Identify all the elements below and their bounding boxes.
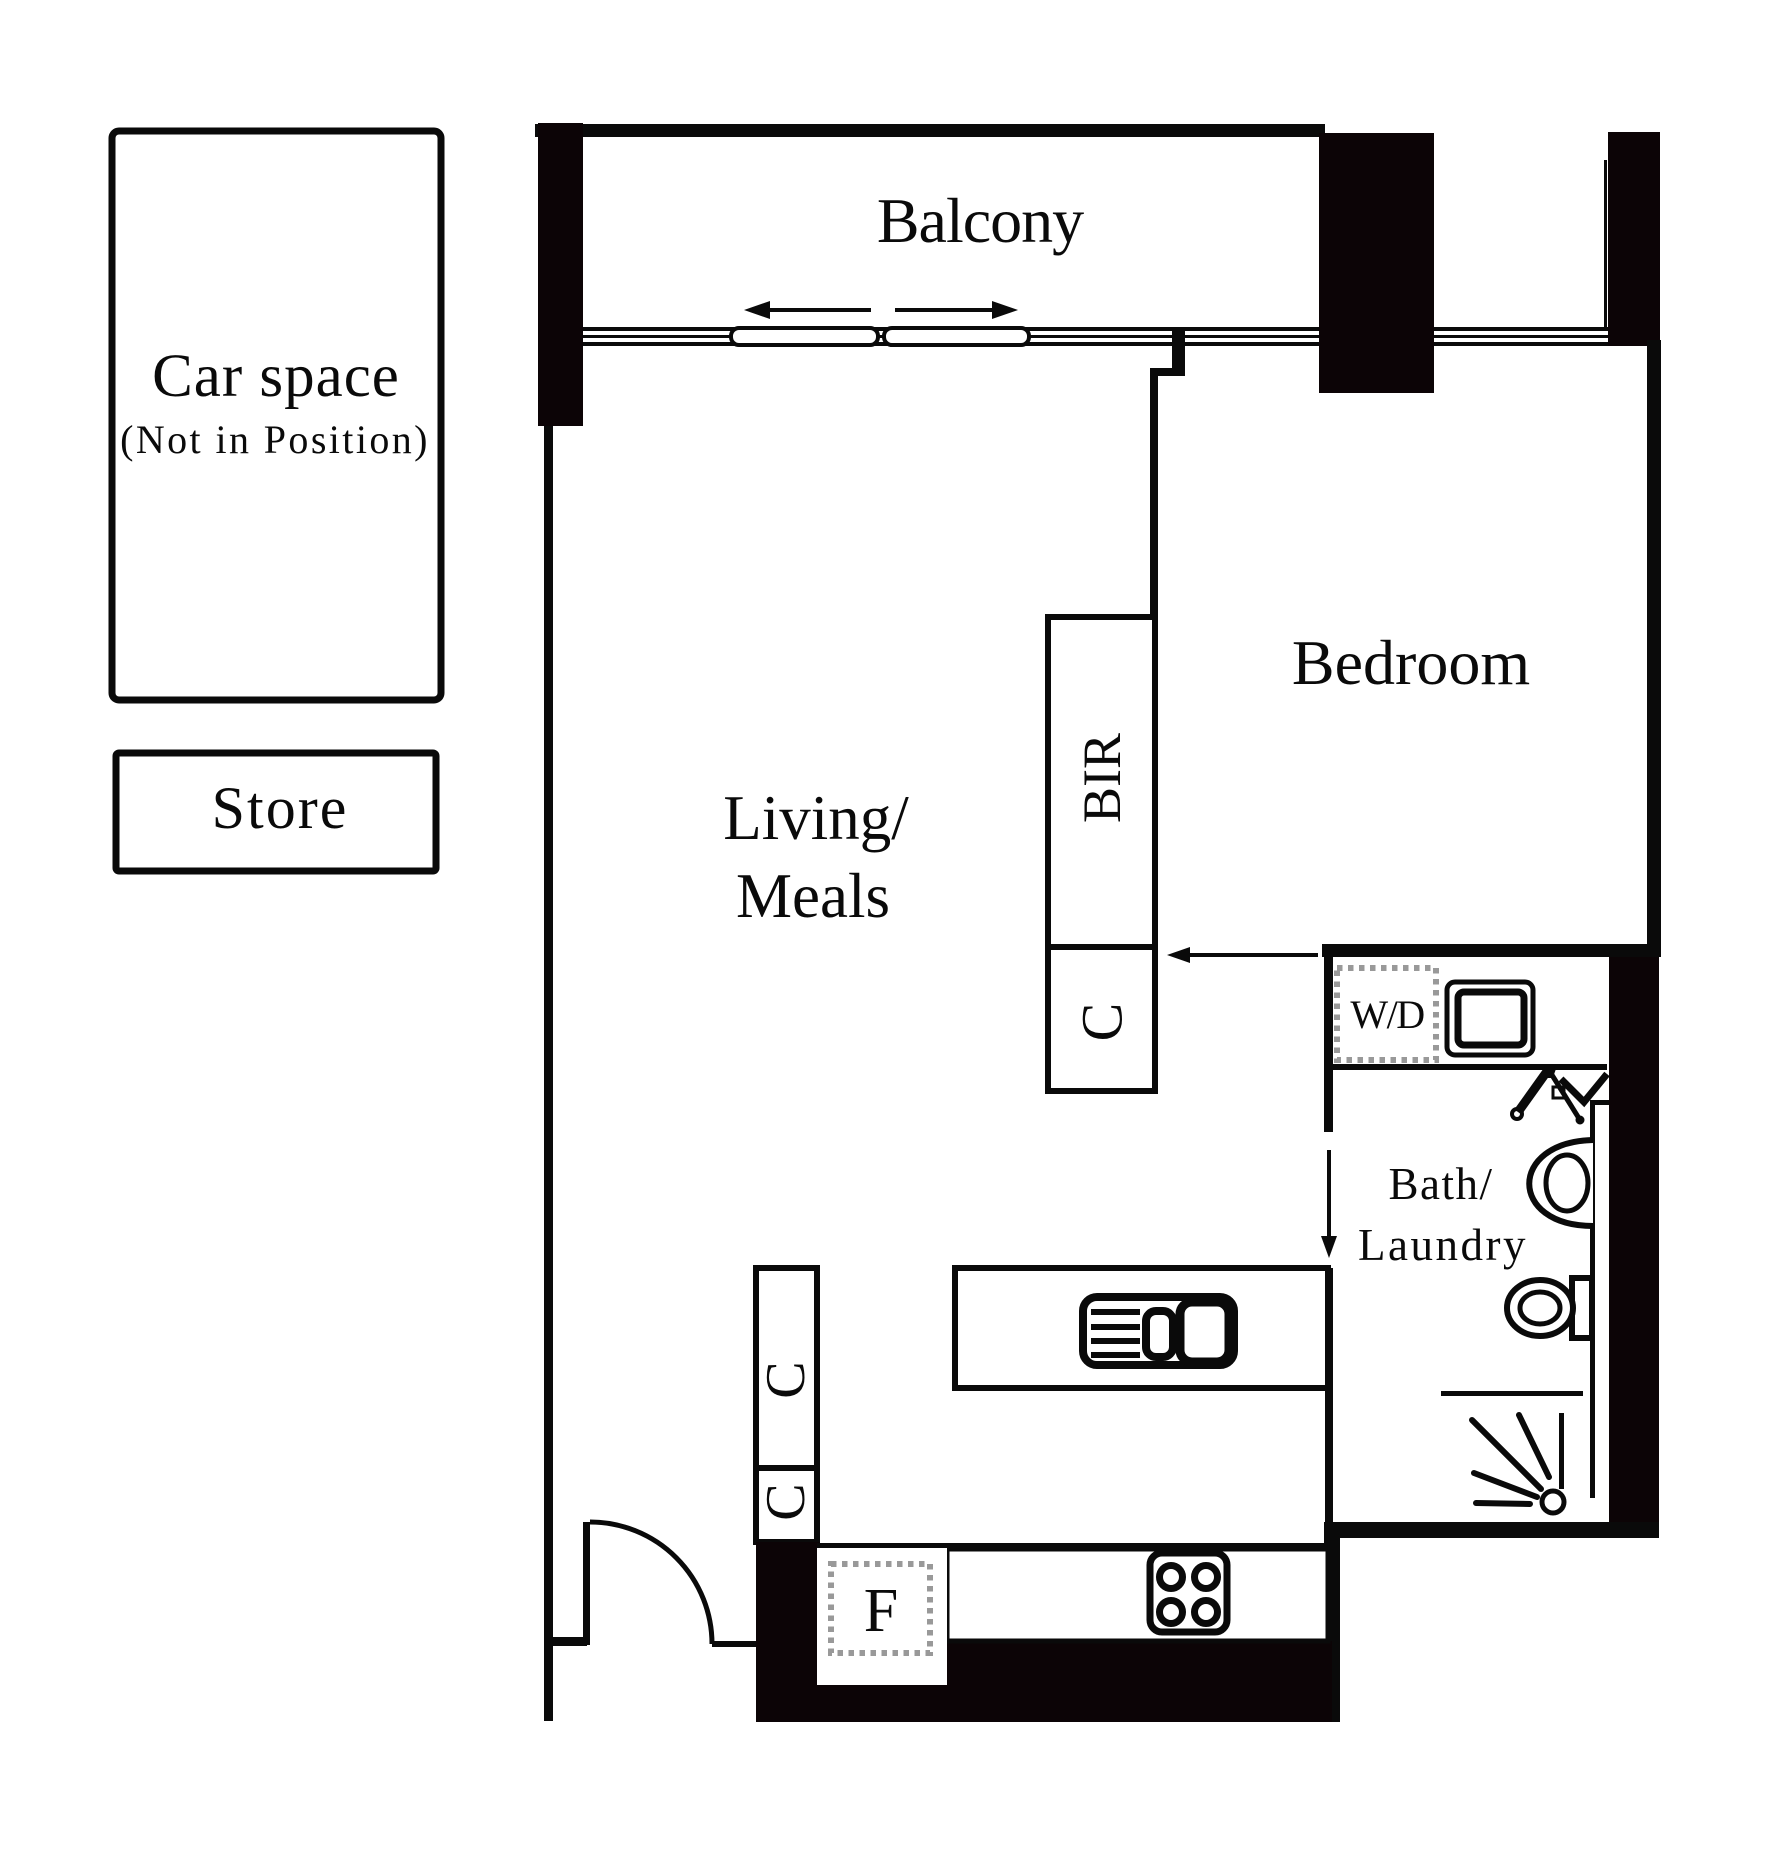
svg-text:Car space: Car space [152,343,400,410]
svg-text:C: C [755,1361,817,1398]
svg-text:Laundry: Laundry [1358,1220,1528,1270]
svg-text:Living/: Living/ [723,783,909,853]
svg-text:W/D: W/D [1350,992,1424,1037]
svg-text:Meals: Meals [736,861,890,931]
svg-text:(Not in Position): (Not in Position) [120,417,430,462]
svg-text:Bath/: Bath/ [1389,1159,1494,1209]
svg-text:C: C [755,1483,817,1520]
svg-text:C: C [1070,1003,1135,1042]
svg-text:Balcony: Balcony [877,185,1084,256]
svg-text:Store: Store [212,775,349,841]
svg-text:BIR: BIR [1072,733,1132,823]
svg-text:F: F [864,1577,898,1645]
svg-text:Bedroom: Bedroom [1292,627,1530,698]
